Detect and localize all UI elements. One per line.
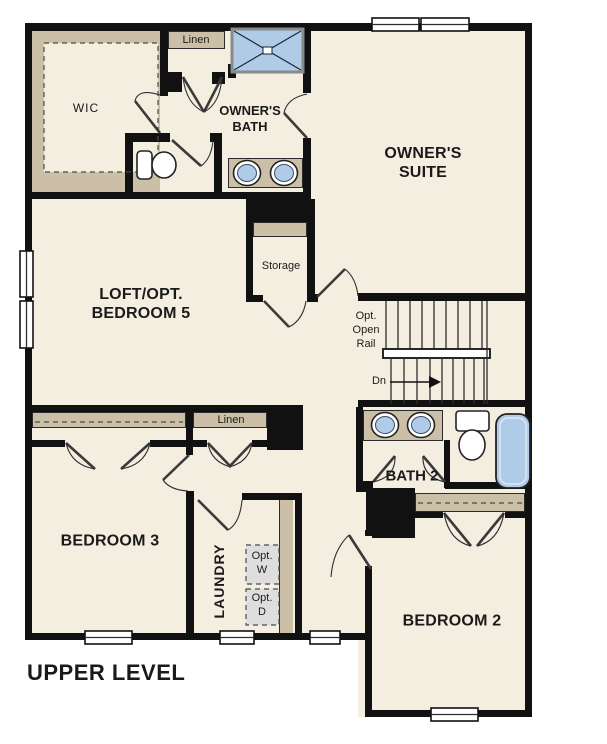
annotation-opt-washer: Opt. W — [252, 549, 273, 577]
room-label-bath2: BATH 2 — [385, 468, 438, 485]
annotation-opt-open-rail-line3: Rail — [353, 337, 380, 351]
room-label-bedroom3: BEDROOM 3 — [61, 532, 160, 551]
annotation-opt-dryer-line2: D — [252, 605, 273, 619]
room-label-owners-bath-line1: OWNER'S — [219, 103, 281, 119]
label-layer: WIC Linen OWNER'S BATH OWNER'S SUITE LOF… — [0, 0, 607, 744]
annotation-opt-dryer: Opt. D — [252, 591, 273, 619]
room-label-storage: Storage — [262, 259, 301, 273]
room-label-bedroom2: BEDROOM 2 — [403, 612, 502, 631]
page-title: UPPER LEVEL — [27, 660, 185, 686]
room-label-linen-hall: Linen — [218, 413, 245, 427]
room-label-owners-suite-line2: SUITE — [384, 163, 461, 182]
room-label-owners-suite: OWNER'S SUITE — [384, 144, 461, 182]
room-label-owners-suite-line1: OWNER'S — [384, 144, 461, 163]
room-label-loft: LOFT/OPT. BEDROOM 5 — [92, 285, 191, 323]
room-label-linen-upper: Linen — [183, 33, 210, 47]
annotation-opt-open-rail-line2: Open — [353, 323, 380, 337]
annotation-opt-open-rail: Opt. Open Rail — [353, 309, 380, 351]
floor-plan: WIC Linen OWNER'S BATH OWNER'S SUITE LOF… — [0, 0, 607, 744]
room-label-laundry: LAUNDRY — [211, 544, 227, 619]
room-label-owners-bath: OWNER'S BATH — [219, 103, 281, 135]
room-label-loft-line1: LOFT/OPT. — [92, 285, 191, 304]
annotation-down: Dn — [372, 374, 386, 388]
room-label-loft-line2: BEDROOM 5 — [92, 304, 191, 323]
annotation-opt-open-rail-line1: Opt. — [353, 309, 380, 323]
room-label-wic: WIC — [73, 101, 99, 115]
annotation-opt-washer-line2: W — [252, 563, 273, 577]
annotation-opt-dryer-line1: Opt. — [252, 591, 273, 605]
annotation-opt-washer-line1: Opt. — [252, 549, 273, 563]
room-label-owners-bath-line2: BATH — [219, 119, 281, 135]
